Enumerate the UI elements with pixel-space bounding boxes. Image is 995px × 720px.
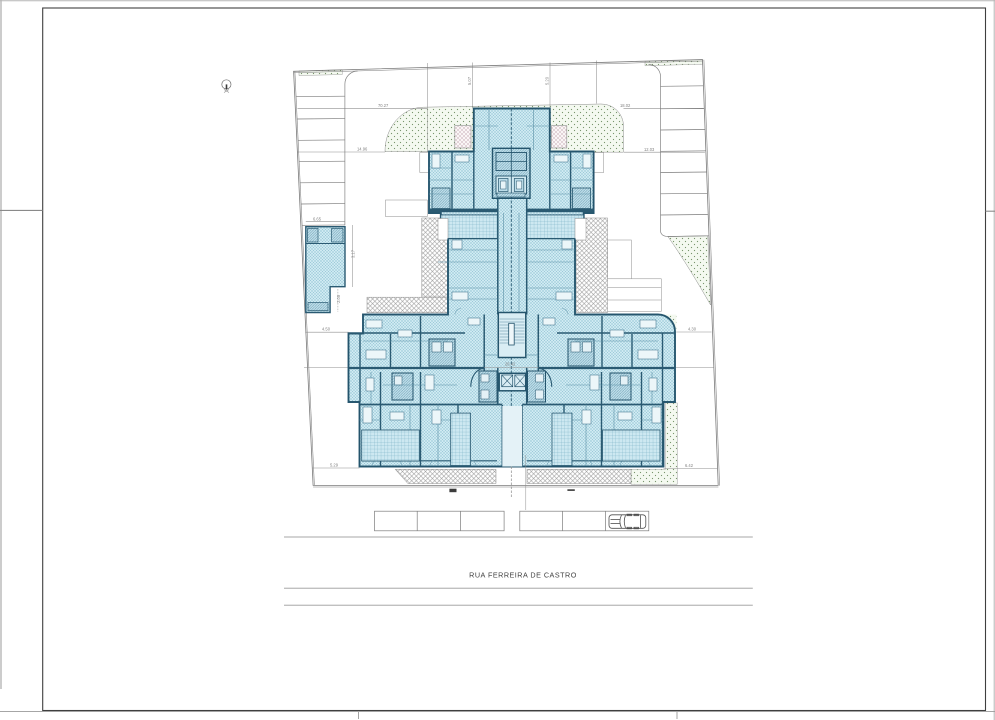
- svg-text:18.02: 18.02: [620, 103, 631, 108]
- svg-text:5.20: 5.20: [544, 76, 549, 85]
- svg-text:RUA FERREIRA DE CASTRO: RUA FERREIRA DE CASTRO: [469, 571, 577, 580]
- svg-text:6.65: 6.65: [313, 216, 322, 221]
- svg-text:12.03: 12.03: [644, 147, 655, 152]
- svg-text:4.50: 4.50: [322, 327, 331, 332]
- svg-text:14.96: 14.96: [357, 147, 368, 152]
- svg-text:4.30: 4.30: [688, 326, 697, 331]
- svg-text:5.07: 5.07: [467, 76, 472, 85]
- svg-text:70.27: 70.27: [378, 103, 389, 108]
- svg-text:5.29: 5.29: [330, 463, 339, 468]
- svg-text:2.05: 2.05: [336, 294, 341, 303]
- svg-text:6.42: 6.42: [685, 463, 694, 468]
- svg-text:26.42: 26.42: [505, 361, 516, 366]
- svg-text:3.17: 3.17: [351, 249, 356, 258]
